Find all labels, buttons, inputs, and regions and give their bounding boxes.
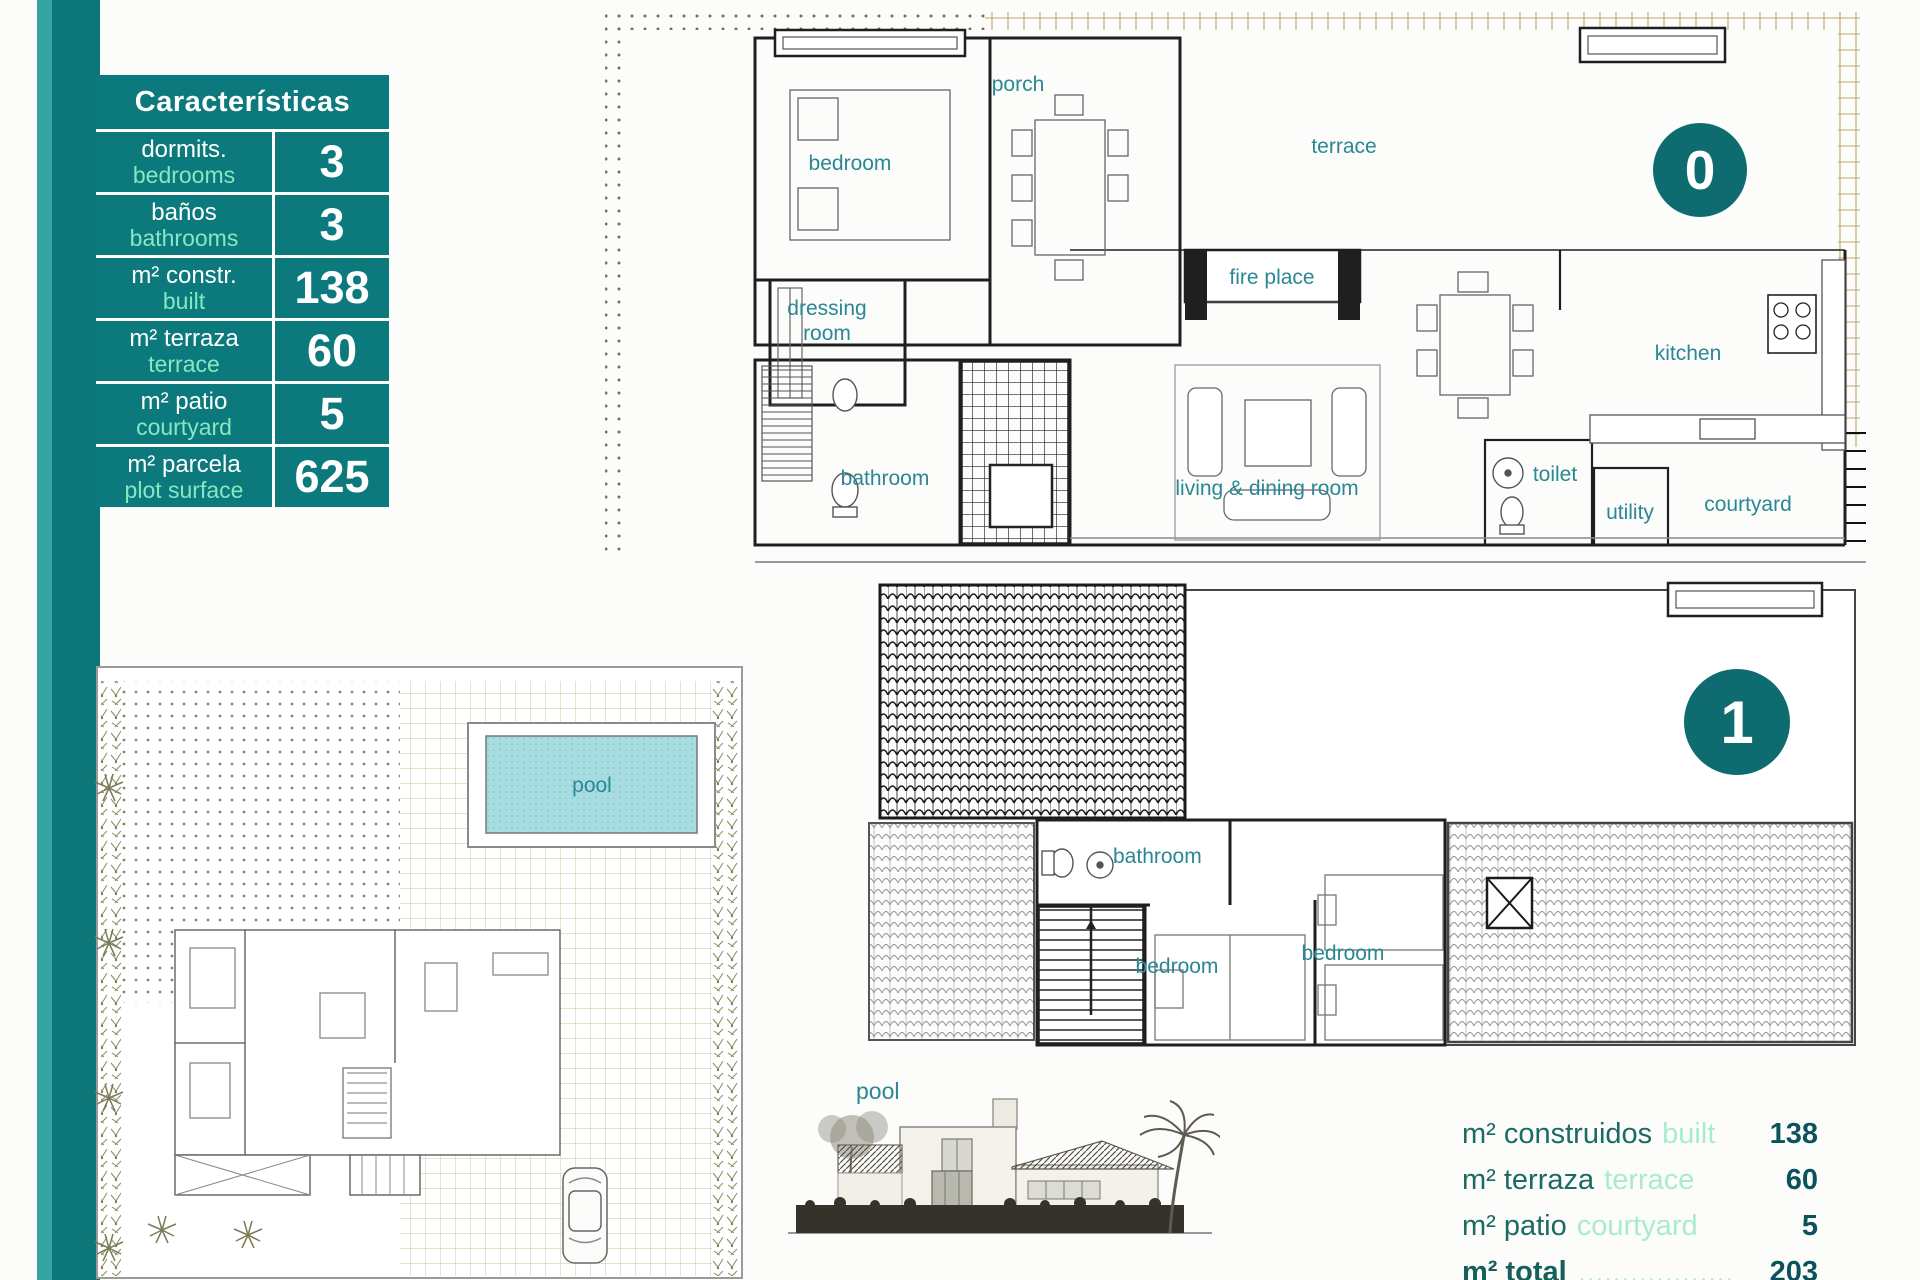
pool: pool	[468, 723, 715, 847]
dark-tick-band-right	[1846, 430, 1866, 548]
elevation-sketch	[780, 1085, 1220, 1260]
room-label-bedroom: bedroom	[809, 152, 892, 175]
summary-row: m² terraza terrace 60	[1462, 1164, 1818, 1210]
row-label: m² terraza terrace	[96, 321, 272, 381]
summary-label-es: m² terraza	[1462, 1164, 1594, 1197]
room-label-bedroom-left: bedroom	[1136, 955, 1219, 978]
toilet-icon	[832, 379, 858, 517]
room-label-fireplace: fire place	[1229, 266, 1314, 289]
label-en: courtyard	[136, 415, 232, 440]
summary-value: 60	[1786, 1164, 1818, 1197]
label-en: bathrooms	[130, 226, 239, 251]
room-label-toilet: toilet	[1533, 463, 1578, 486]
row-value: 3	[275, 195, 389, 255]
summary-label-en: terrace	[1604, 1164, 1694, 1197]
level-0-badge: 0	[1653, 123, 1747, 217]
row-label: m² parcela plot surface	[96, 447, 272, 507]
table-row: m² parcela plot surface 625	[96, 447, 389, 507]
window-icon	[1580, 28, 1725, 62]
room-label-utility: utility	[1606, 501, 1654, 524]
row-value: 5	[275, 384, 389, 444]
characteristics-table: Características dormits. bedrooms 3 baño…	[96, 75, 389, 507]
summary-value: 138	[1770, 1118, 1818, 1151]
dotted-ground-band-top	[605, 12, 985, 30]
room-label-porch: porch	[992, 73, 1045, 96]
roof-light-tiles-left	[869, 823, 1034, 1040]
staircase-icon	[962, 362, 1068, 543]
summary-label-es: m² construidos	[1462, 1118, 1652, 1151]
summary-label-es: m² patio	[1462, 1210, 1567, 1243]
label-es: m² terraza	[129, 326, 238, 352]
label-es: m² patio	[141, 389, 228, 415]
car-icon	[563, 1168, 607, 1263]
table-row: baños bathrooms 3	[96, 195, 389, 255]
area-summary: m² construidos built 138 m² terraza terr…	[1462, 1118, 1818, 1280]
room-label-living: living & dining room	[1175, 477, 1358, 500]
floorplan-level-0: bedroom porch terrace dressing room fire…	[600, 10, 1870, 570]
dining-table-icon	[1417, 272, 1533, 418]
left-accent-bar	[37, 0, 100, 1280]
table-row: m² patio courtyard 5	[96, 384, 389, 444]
wc-fixtures-icon	[1493, 458, 1524, 534]
label-en: terrace	[148, 352, 220, 377]
table-row: dormits. bedrooms 3	[96, 132, 389, 192]
room-label-dressing-2: room	[803, 322, 851, 345]
summary-label-en: courtyard	[1577, 1210, 1698, 1243]
row-label: baños bathrooms	[96, 195, 272, 255]
room-label-courtyard: courtyard	[1704, 493, 1792, 516]
summary-total-label: m² total	[1462, 1256, 1567, 1280]
table-row: m² constr. built 138	[96, 258, 389, 318]
summary-row: m² construidos built 138	[1462, 1118, 1818, 1164]
window-icon	[1668, 583, 1822, 616]
label-en: bedrooms	[133, 163, 235, 188]
porch-table-icon	[1012, 95, 1128, 280]
level-1-badge: 1	[1684, 669, 1790, 775]
summary-label-en: built	[1662, 1118, 1715, 1151]
summary-value: 5	[1802, 1210, 1818, 1243]
row-value: 138	[275, 258, 389, 318]
window-icon	[775, 30, 965, 56]
site-plan: pool	[95, 663, 745, 1280]
characteristics-title: Características	[96, 75, 389, 129]
summary-total-value: 203	[1770, 1256, 1818, 1280]
table-row: m² terraza terrace 60	[96, 321, 389, 381]
hedge-strip-left	[101, 681, 121, 1276]
row-label: dormits. bedrooms	[96, 132, 272, 192]
room-label-bedroom-right: bedroom	[1302, 942, 1385, 965]
shower-icon	[762, 366, 812, 481]
label-es: baños	[151, 200, 216, 226]
summary-row: m² patio courtyard 5	[1462, 1210, 1818, 1256]
sofa-set-icon	[1175, 365, 1380, 540]
label-es: dormits.	[141, 137, 226, 163]
label-en: plot surface	[125, 478, 244, 503]
floorplan-level-1: bathroom bedroom bedroom	[690, 575, 1870, 1065]
row-label: m² constr. built	[96, 258, 272, 318]
row-value: 3	[275, 132, 389, 192]
row-value: 625	[275, 447, 389, 507]
roof-dark-tiles	[880, 585, 1185, 818]
label-es: m² constr.	[131, 263, 236, 289]
row-label: m² patio courtyard	[96, 384, 272, 444]
room-label-bathroom: bathroom	[841, 467, 930, 490]
roof-light-tiles-right	[1448, 823, 1852, 1042]
room-label-bathroom: bathroom	[1113, 845, 1202, 868]
dotted-ground-band-left	[605, 12, 625, 560]
summary-total-row: m² total .................. 203	[1462, 1256, 1818, 1280]
dotted-leader: ..................	[1579, 1260, 1735, 1280]
room-label-kitchen: kitchen	[1655, 342, 1722, 365]
pool-label: pool	[572, 774, 612, 797]
brochure-page: Características dormits. bedrooms 3 baño…	[0, 0, 1920, 1280]
sliding-glass-wall	[755, 538, 1866, 562]
row-value: 60	[275, 321, 389, 381]
house-footprint	[175, 930, 560, 1195]
label-en: built	[163, 289, 205, 314]
staircase-icon	[1039, 907, 1143, 1043]
label-es: m² parcela	[127, 452, 240, 478]
room-label-dressing-1: dressing	[787, 297, 866, 320]
room-label-terrace: terrace	[1311, 135, 1376, 158]
